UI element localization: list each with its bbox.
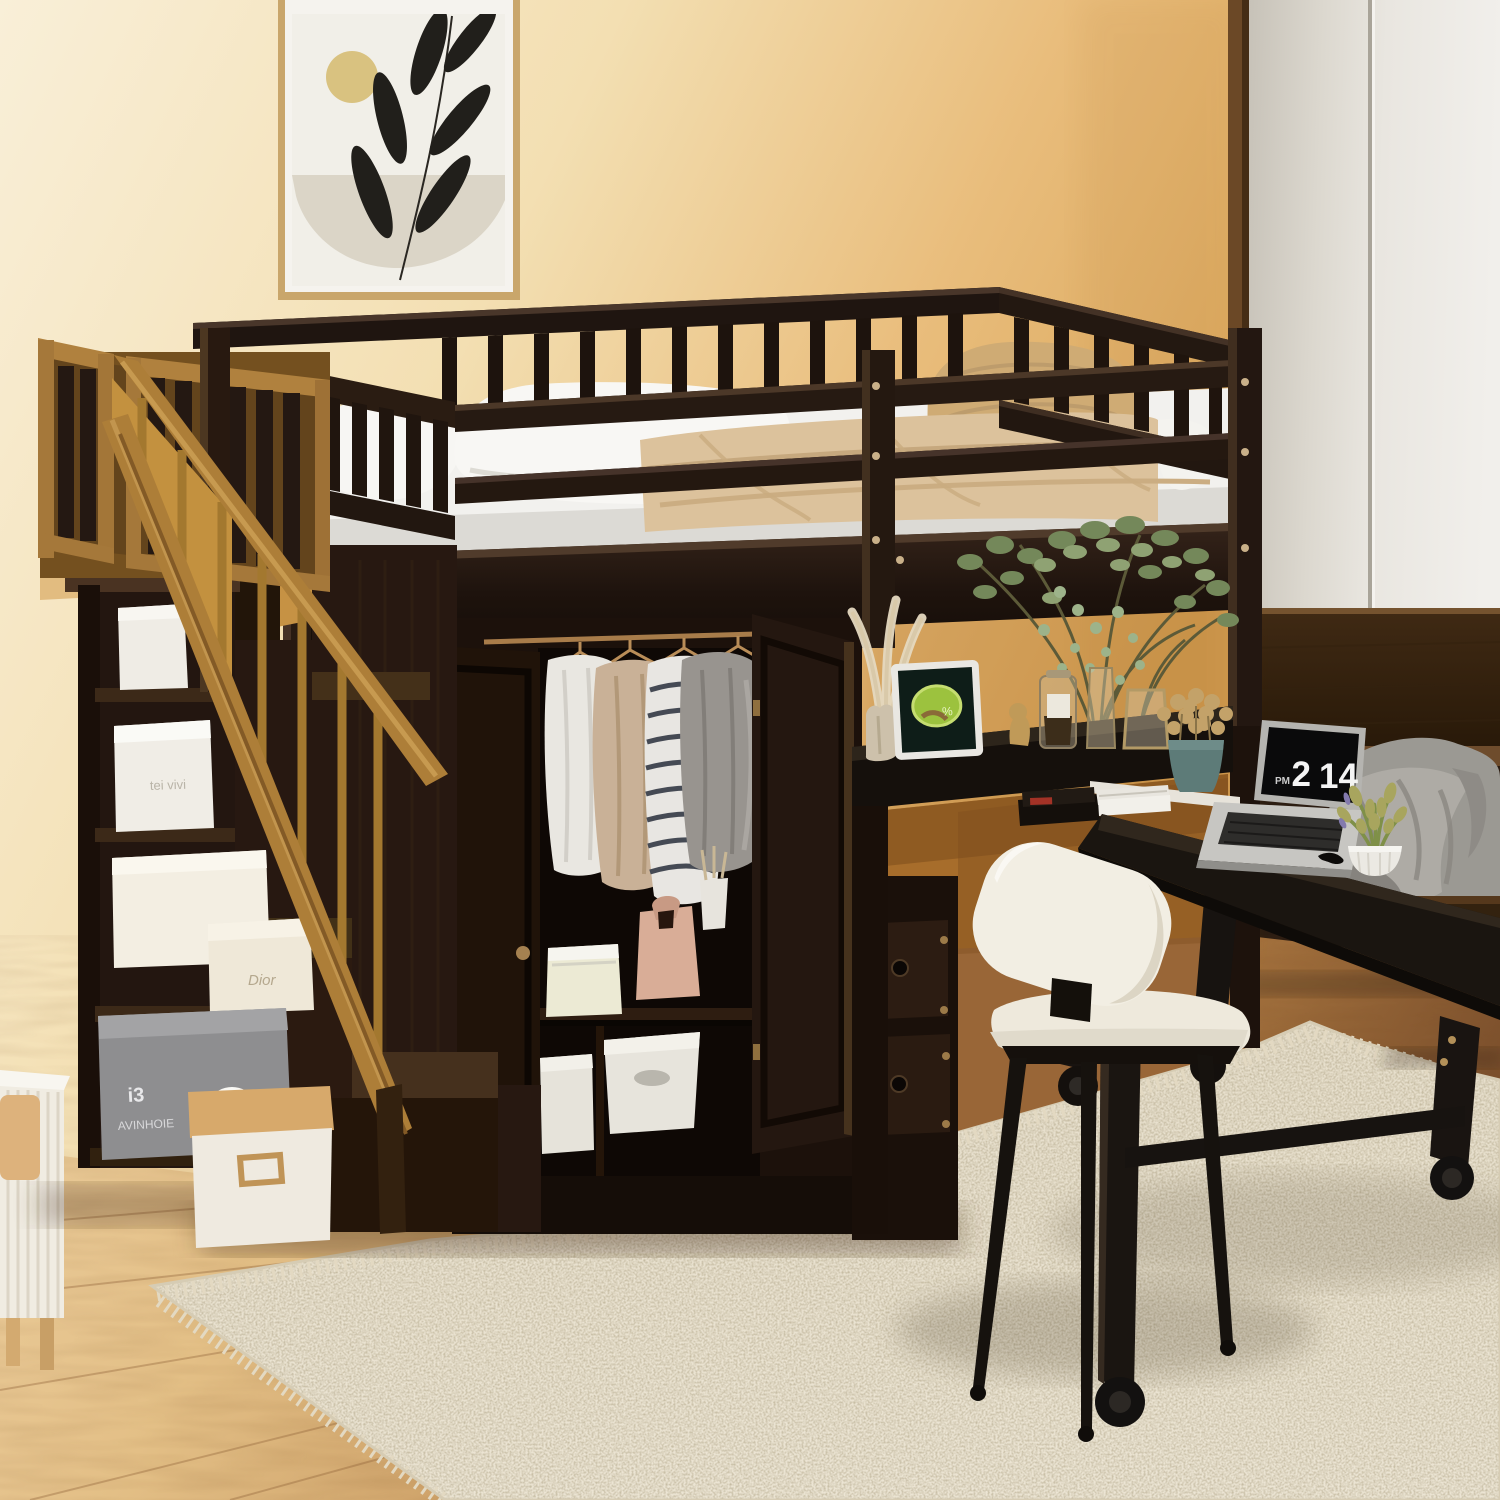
svg-text:%: % — [942, 704, 954, 719]
svg-text:Dior: Dior — [248, 972, 277, 989]
svg-text:tei vivi: tei vivi — [150, 777, 187, 793]
svg-text:PM: PM — [1275, 776, 1290, 787]
svg-text:2: 2 — [1292, 755, 1311, 794]
svg-text:i3: i3 — [127, 1084, 145, 1107]
svg-text:AVINHOIE: AVINHOIE — [117, 1116, 174, 1133]
